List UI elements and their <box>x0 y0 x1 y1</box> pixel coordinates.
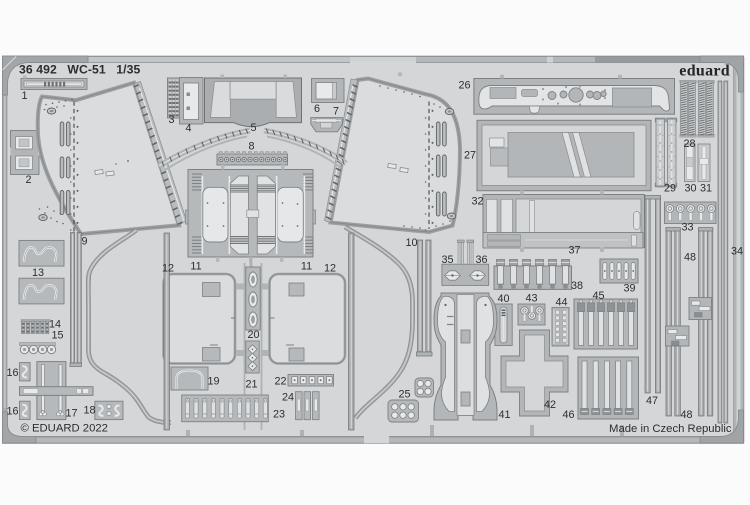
svg-text:37: 37 <box>568 245 580 257</box>
svg-text:34: 34 <box>731 246 743 258</box>
svg-text:33: 33 <box>681 222 693 234</box>
svg-text:32: 32 <box>471 196 483 208</box>
svg-text:26: 26 <box>458 80 470 92</box>
svg-text:42: 42 <box>544 399 556 411</box>
svg-text:41: 41 <box>498 409 510 421</box>
svg-text:11: 11 <box>301 261 312 273</box>
svg-text:4: 4 <box>185 123 191 135</box>
svg-text:47: 47 <box>646 395 658 407</box>
svg-text:45: 45 <box>592 290 604 302</box>
svg-text:36 492 WC-51 1/35: 36 492 WC-51 1/35 <box>19 63 140 77</box>
svg-text:35: 35 <box>441 254 453 266</box>
svg-text:39: 39 <box>623 283 635 295</box>
svg-text:46: 46 <box>562 409 574 421</box>
svg-text:43: 43 <box>525 293 537 305</box>
svg-text:44: 44 <box>555 297 567 309</box>
svg-text:16: 16 <box>6 367 18 379</box>
svg-text:24: 24 <box>282 392 294 404</box>
svg-text:25: 25 <box>398 389 410 401</box>
svg-text:30: 30 <box>684 183 696 195</box>
svg-text:18: 18 <box>83 405 95 417</box>
svg-text:22: 22 <box>274 376 286 388</box>
svg-text:13: 13 <box>32 267 44 279</box>
svg-text:19: 19 <box>207 376 219 388</box>
svg-text:16: 16 <box>6 406 18 418</box>
svg-text:10: 10 <box>405 237 417 249</box>
svg-text:28: 28 <box>683 138 695 150</box>
svg-text:3: 3 <box>168 114 174 126</box>
svg-text:6: 6 <box>314 103 320 115</box>
svg-text:9: 9 <box>81 236 87 248</box>
svg-text:8: 8 <box>248 141 254 153</box>
svg-text:21: 21 <box>245 379 257 391</box>
svg-text:38: 38 <box>571 280 583 292</box>
svg-text:eduard: eduard <box>679 63 730 80</box>
svg-text:27: 27 <box>464 150 476 162</box>
svg-text:17: 17 <box>65 408 77 420</box>
svg-text:12: 12 <box>162 263 174 275</box>
svg-text:15: 15 <box>51 330 63 342</box>
svg-text:Made in Czech Republic: Made in Czech Republic <box>609 423 732 435</box>
svg-text:29: 29 <box>664 183 676 195</box>
svg-text:© EDUARD 2022: © EDUARD 2022 <box>21 423 108 435</box>
svg-text:48: 48 <box>680 409 692 421</box>
svg-text:12: 12 <box>324 263 336 275</box>
svg-text:31: 31 <box>700 183 712 195</box>
svg-text:48: 48 <box>684 252 696 264</box>
svg-text:2: 2 <box>25 174 31 186</box>
svg-text:36: 36 <box>475 254 487 266</box>
svg-text:40: 40 <box>497 293 509 305</box>
svg-text:5: 5 <box>250 122 256 134</box>
svg-text:1: 1 <box>21 90 27 102</box>
svg-text:23: 23 <box>273 409 285 421</box>
svg-text:11: 11 <box>190 261 201 273</box>
svg-text:20: 20 <box>247 329 259 341</box>
svg-text:7: 7 <box>333 106 339 118</box>
